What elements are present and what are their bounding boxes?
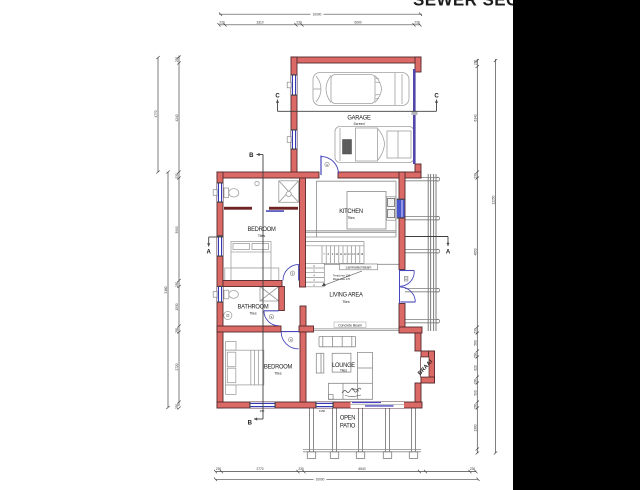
svg-text:1300: 1300 xyxy=(473,424,477,431)
svg-text:230: 230 xyxy=(414,21,420,25)
svg-text:A: A xyxy=(207,250,212,256)
svg-text:230: 230 xyxy=(470,467,476,471)
svg-text:OPEN: OPEN xyxy=(340,414,356,422)
svg-text:BEDROOM: BEDROOM xyxy=(247,226,275,234)
svg-text:1530: 1530 xyxy=(175,303,179,310)
svg-text:6540: 6540 xyxy=(358,467,365,471)
svg-text:3990: 3990 xyxy=(175,226,179,233)
svg-text:C: C xyxy=(275,94,280,100)
svg-text:LIVING AREA: LIVING AREA xyxy=(329,291,363,299)
svg-text:10000: 10000 xyxy=(313,12,322,16)
svg-text:230: 230 xyxy=(473,328,477,334)
svg-text:Tiles: Tiles xyxy=(340,369,348,373)
svg-text:620: 620 xyxy=(473,365,477,371)
svg-text:SEWER SEC: SEWER SEC xyxy=(413,0,519,10)
svg-text:4240: 4240 xyxy=(175,114,179,121)
svg-text:Tiles: Tiles xyxy=(258,234,266,238)
svg-text:230: 230 xyxy=(473,404,477,410)
svg-text:PATIO: PATIO xyxy=(340,422,356,430)
svg-text:B: B xyxy=(248,421,253,427)
svg-text:4650: 4650 xyxy=(473,248,477,255)
svg-text:230: 230 xyxy=(175,282,179,288)
svg-text:230: 230 xyxy=(175,173,179,179)
svg-text:230: 230 xyxy=(473,173,477,179)
svg-text:230: 230 xyxy=(219,21,225,25)
svg-text:450: 450 xyxy=(260,409,265,413)
svg-text:Riser max 170: Riser max 170 xyxy=(333,277,351,281)
svg-text:3310: 3310 xyxy=(256,21,263,25)
svg-text:GARAGE: GARAGE xyxy=(347,114,370,122)
svg-text:230: 230 xyxy=(175,57,179,63)
svg-text:Laminated Beam: Laminated Beam xyxy=(346,265,372,269)
svg-text:KITCHEN: KITCHEN xyxy=(339,208,363,216)
svg-text:C: C xyxy=(434,94,439,100)
svg-text:590: 590 xyxy=(473,390,477,396)
svg-text:9180: 9180 xyxy=(164,286,168,293)
svg-text:Tiles: Tiles xyxy=(347,216,355,220)
svg-text:230: 230 xyxy=(296,21,302,25)
svg-text:Concrete Beam: Concrete Beam xyxy=(338,323,362,327)
svg-text:BEDROOM: BEDROOM xyxy=(264,363,292,371)
svg-text:230: 230 xyxy=(473,60,477,66)
svg-text:6000: 6000 xyxy=(354,21,361,25)
svg-text:Tiles: Tiles xyxy=(342,300,350,304)
svg-text:230: 230 xyxy=(473,379,477,385)
svg-text:B: B xyxy=(249,153,254,159)
svg-text:2770: 2770 xyxy=(256,467,263,471)
svg-text:4150: 4150 xyxy=(319,409,326,413)
svg-text:4770: 4770 xyxy=(154,110,158,117)
svg-text:Tiles: Tiles xyxy=(274,372,282,376)
svg-text:230: 230 xyxy=(175,404,179,410)
svg-text:BATHROOM: BATHROOM xyxy=(238,303,269,311)
svg-text:A: A xyxy=(446,250,451,256)
svg-text:230: 230 xyxy=(216,467,222,471)
svg-text:560: 560 xyxy=(473,340,477,346)
svg-text:230: 230 xyxy=(298,467,304,471)
svg-text:230: 230 xyxy=(473,353,477,359)
svg-text:6140: 6140 xyxy=(473,114,477,121)
svg-text:12250: 12250 xyxy=(492,195,496,204)
svg-text:2720: 2720 xyxy=(175,363,179,370)
svg-text:Screed: Screed xyxy=(353,122,364,126)
svg-text:Tiles: Tiles xyxy=(249,312,257,316)
svg-text:10000: 10000 xyxy=(316,478,325,482)
svg-text:230: 230 xyxy=(175,328,179,334)
